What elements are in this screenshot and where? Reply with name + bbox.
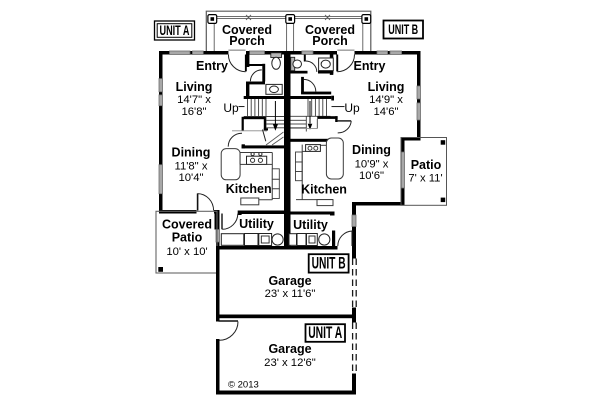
svg-text:UNIT A: UNIT A [308,324,342,342]
svg-text:UNIT A: UNIT A [160,22,190,38]
svg-text:UNIT B: UNIT B [388,21,418,37]
svg-text:10' x 10': 10' x 10' [166,246,207,258]
svg-text:Living: Living [176,80,213,94]
svg-text:23' x 12'6": 23' x 12'6" [264,357,316,369]
svg-text:Dining: Dining [172,146,211,160]
svg-text:Entry: Entry [196,59,228,73]
svg-text:14'9" x: 14'9" x [369,94,403,106]
svg-text:10'6": 10'6" [359,170,384,182]
svg-text:Patio: Patio [411,158,442,172]
svg-text:10'9" x: 10'9" x [355,158,389,170]
svg-text:14'7" x: 14'7" x [177,94,211,106]
svg-text:Porch: Porch [229,34,264,48]
svg-text:Patio: Patio [172,231,203,245]
svg-text:Utility: Utility [293,218,328,232]
svg-text:© 2013: © 2013 [228,380,259,391]
svg-text:Up: Up [344,101,360,115]
svg-text:16'8": 16'8" [181,106,206,118]
svg-text:Covered: Covered [162,218,212,232]
svg-text:Dining: Dining [352,143,391,157]
svg-text:Living: Living [368,80,405,94]
svg-text:14'6": 14'6" [373,106,398,118]
svg-text:Entry: Entry [354,59,386,73]
svg-text:UNIT B: UNIT B [312,254,346,272]
svg-text:Kitchen: Kitchen [226,182,272,196]
svg-text:23' x 11'6": 23' x 11'6" [265,288,316,300]
svg-text:Garage: Garage [268,274,311,288]
svg-text:Kitchen: Kitchen [301,183,347,197]
svg-text:11'8" x: 11'8" x [175,160,208,172]
svg-text:Utility: Utility [239,217,274,231]
svg-text:Garage: Garage [268,342,311,356]
svg-text:Up: Up [223,101,239,115]
svg-text:7' x 11': 7' x 11' [408,173,442,185]
svg-text:Porch: Porch [312,34,347,48]
svg-text:10'4": 10'4" [178,172,203,184]
